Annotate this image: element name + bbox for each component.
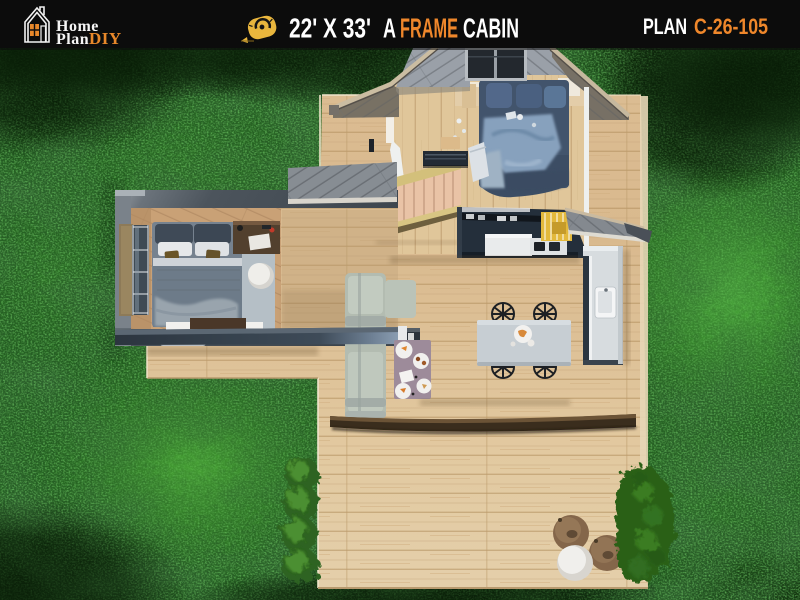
svg-text:PLAN: PLAN <box>643 14 687 39</box>
svg-text:22' X 33': 22' X 33' <box>289 13 371 44</box>
svg-text:DIY: DIY <box>89 29 122 48</box>
svg-text:CABIN: CABIN <box>463 13 519 44</box>
svg-text:C-26-105: C-26-105 <box>694 14 768 39</box>
svg-text:FRAME: FRAME <box>400 13 458 44</box>
svg-text:A: A <box>383 13 396 44</box>
svg-text:Plan: Plan <box>56 31 89 48</box>
